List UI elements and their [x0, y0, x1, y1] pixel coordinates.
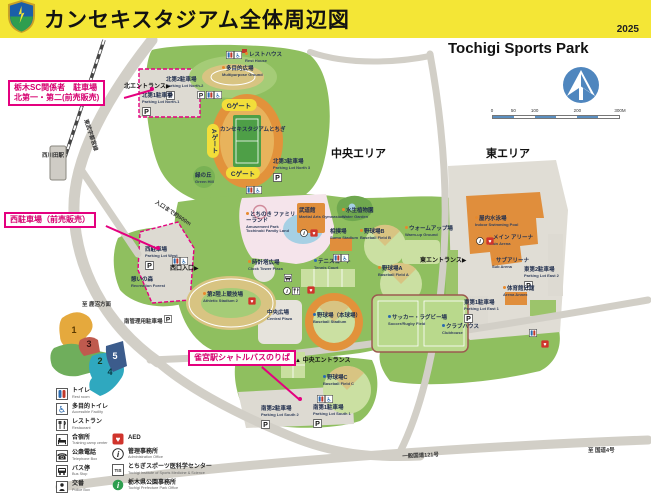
facility-label: 北第3駐車場Parking Lot North 3P	[273, 160, 310, 187]
svg-text:♥: ♥	[312, 231, 315, 237]
facility-name-en: Martial Arts Gymnasium	[299, 215, 345, 219]
restroom-icon	[317, 395, 325, 403]
road-label: 至 鹿沼方面	[82, 300, 111, 308]
scale-segment	[514, 116, 535, 118]
svg-text:♿: ♿	[215, 92, 220, 99]
svg-text:P: P	[147, 262, 152, 270]
facility-label: 第2陸上競技場Athletic Stadium 2	[203, 292, 243, 303]
facility-name-en: Clubhouse	[442, 331, 479, 335]
svg-text:♿: ♿	[342, 255, 347, 262]
svg-text:P: P	[166, 316, 170, 323]
legend-label-jp: 栃木県公園事務所	[128, 480, 178, 487]
tochigi-sc-logo	[7, 0, 36, 38]
restaurant-icon	[292, 287, 300, 295]
aed-icon: ♥	[541, 340, 549, 348]
bullet-icon	[342, 208, 345, 211]
facility-label: メイン アリーナMain Arena	[489, 235, 533, 246]
parking-icon: P	[142, 103, 151, 120]
svg-text:♥: ♥	[116, 435, 121, 444]
facility-label: 屋内水泳場Indoor Swimming Pool	[475, 216, 518, 227]
facility-name-en: Baseball Field B	[360, 236, 391, 240]
zone-number: 2	[97, 356, 102, 366]
svg-text:TIS: TIS	[114, 468, 121, 473]
facility-name-en: Baseball Stadium	[313, 320, 361, 324]
scale-tick: 0	[491, 108, 494, 113]
parking-icon: P	[145, 257, 154, 274]
facility-name-en: Sumo Stadium	[330, 236, 358, 240]
facility-label: 野球場BBaseball Field B	[360, 229, 391, 240]
facility-label: 北第1駐車場Parking Lot North-1P	[142, 94, 179, 121]
facility-label: 時計塔広場Clock Tower Plaza	[248, 260, 283, 271]
legend-item: ♥AED	[112, 431, 212, 447]
svg-text:♿: ♿	[235, 52, 240, 59]
restaurant-icon	[56, 419, 69, 431]
legend-item: トイレRest room	[56, 386, 108, 402]
zone-number: 5	[112, 351, 117, 361]
bullet-icon	[203, 292, 206, 295]
facility-name-en: Indoor Swimming Pool	[475, 223, 518, 227]
stadium-gate-label: Gゲート	[222, 99, 257, 111]
facility-name-en: Green Hill	[195, 180, 214, 184]
bullet-icon	[475, 216, 478, 219]
facility-label: 緑の丘Green Hill	[195, 174, 214, 184]
restroom-icon	[226, 51, 234, 59]
legend-item: レストランRestaurant	[56, 417, 108, 433]
legend-item: i栃木県公園事務所Tochigi Prefecture Park Office	[112, 478, 212, 494]
page-title: カンセキスタジアム全体周辺図	[44, 4, 350, 34]
facility-label: 南第2駐車場Parking Lot South 2P	[261, 407, 299, 434]
info-icon: i	[476, 237, 484, 245]
road-label: 入口まで約600m	[154, 198, 193, 227]
bullet-icon	[503, 286, 506, 289]
bullet-icon	[314, 259, 317, 262]
callout-leader-dot	[150, 87, 154, 91]
restroom-icon	[333, 254, 341, 262]
parking-icon: P	[164, 319, 172, 325]
facility-name-en: Warm-up Ground	[405, 233, 453, 237]
scale-segment	[577, 116, 598, 118]
restroom-icon	[56, 388, 69, 400]
facility-label: 多目的広場Multipurpose Ground	[222, 66, 263, 77]
facility-label: 野球場（本球場）Baseball Stadium	[313, 313, 361, 324]
svg-text:♿: ♿	[255, 187, 260, 194]
road-label: 東武宇都宮線	[82, 118, 100, 152]
facility-label: 野球場ABaseball Field A	[378, 266, 409, 277]
facility-name-en: Central Plaza	[267, 317, 292, 321]
bullet-icon	[388, 315, 391, 318]
scale-segment	[493, 116, 514, 118]
facility-name-en: Arena Annex	[503, 293, 535, 297]
legend-label-jp: バス停	[72, 466, 90, 473]
info-icon: i	[283, 287, 291, 295]
facility-name-en: Athletic Stadium 2	[203, 299, 243, 303]
facility-label: 体育館分館Arena Annex	[503, 286, 535, 297]
legend-label-jp: 多目的トイレ	[72, 404, 108, 411]
legend-label-en: Tochigi Institute of Sports Medicine & S…	[128, 471, 212, 475]
facility-label: 東第1駐車場Parking Lot East 1P	[464, 301, 499, 328]
bullet-icon	[405, 226, 408, 229]
svg-text:♥: ♥	[543, 342, 546, 348]
entrance-label: 北エントランス▶	[124, 81, 171, 90]
aed-icon: ♥	[307, 286, 315, 294]
facility-label: サッカー・ラグビー場Soccer/Rugby Field	[388, 315, 447, 326]
facility-name-en: Amusement Park Tochinoki Family Land	[246, 225, 298, 233]
legend-label-jp: 管理事務所	[128, 449, 163, 456]
facility-name-en: Baseball Field C	[323, 382, 354, 386]
svg-text:♥: ♥	[250, 299, 253, 305]
callout-leader-line	[106, 225, 159, 249]
legend-item: ☎公衆電話Telephone Box	[56, 448, 108, 464]
svg-text:P: P	[466, 315, 471, 323]
road-label: 至 国道4号	[588, 446, 615, 454]
facility-label: 水生植物園Water Garden	[342, 208, 374, 219]
legend-left-column: トイレRest room♿多目的トイレAccessible Facilityレス…	[56, 386, 108, 495]
legend-item: ♿多目的トイレAccessible Facility	[56, 402, 108, 418]
facility-label: 武道館Martial Arts Gymnasium	[299, 209, 345, 219]
accessible-icon: ♿	[341, 254, 349, 262]
legend-label-en: Police Box	[72, 488, 90, 492]
legend-label-en: Tochigi Prefecture Park Office	[128, 486, 178, 490]
facility-name-en: Soccer/Rugby Field	[388, 322, 447, 326]
facility-label: 中央広場Central Plaza	[267, 311, 292, 321]
stadium-gate-label: Cゲート	[226, 167, 260, 179]
legend-label-en: Administration Office	[128, 455, 163, 459]
year-label: 2025	[617, 24, 639, 35]
callout-leader-line	[262, 366, 301, 400]
svg-text:♿: ♿	[58, 405, 66, 415]
accessible-icon: ♿	[56, 403, 69, 415]
accessible-icon: ♿	[325, 395, 333, 403]
restroom-icon	[529, 329, 537, 337]
legend-label-jp: 合宿所	[72, 435, 108, 442]
header-bar: カンセキスタジアム全体周辺図 2025	[0, 0, 651, 38]
scale-tick: 300M	[614, 108, 625, 113]
svg-text:♿: ♿	[181, 258, 186, 265]
park-office-icon: i	[112, 479, 125, 491]
svg-text:P: P	[144, 108, 149, 116]
facility-name-en: Main Arena	[489, 242, 533, 246]
restroom-icon	[172, 257, 180, 265]
scale-tick: 100	[531, 108, 539, 113]
facility-name-en: Baseball Field A	[378, 273, 409, 277]
legend-item: バス停Bus Stop	[56, 464, 108, 480]
legend-label-en: Training camp center	[72, 441, 108, 445]
road-label: 南管理用駐車場 P	[124, 315, 172, 325]
callout-box: 西駐車場（前売販売）	[4, 212, 96, 228]
legend-label-jp: レストラン	[72, 419, 102, 426]
zone-number: 1	[71, 325, 76, 335]
parking-icon: P	[261, 416, 270, 433]
legend-label-en: Restaurant	[72, 426, 102, 430]
aed-icon: ♥	[248, 297, 256, 305]
area-label: 中央エリア	[331, 145, 386, 161]
bus-stop-icon	[56, 465, 69, 477]
entrance-label: 東エントランス▶	[420, 255, 467, 264]
aed-icon: ♥	[486, 237, 494, 245]
facility-name-en: Clock Tower Plaza	[248, 267, 283, 271]
facility-label: カンセキスタジアムとちぎ	[220, 128, 285, 134]
bullet-icon	[442, 324, 445, 327]
accessible-icon: ♿	[180, 257, 188, 265]
scale-segment	[556, 116, 577, 118]
road-label: 西川田駅	[42, 151, 64, 159]
police-icon	[56, 481, 69, 493]
bullet-icon	[360, 229, 363, 232]
parking-icon: P	[273, 169, 282, 186]
svg-text:♿: ♿	[326, 396, 331, 403]
facility-label: 南第1駐車場Parking Lot South 1P	[313, 406, 351, 433]
entrance-label: ▲ 中央エントランス	[295, 355, 351, 364]
svg-text:☎: ☎	[57, 451, 68, 461]
screen: カンセキスタジアム全体周辺図 2025 Tochigi Sports Park …	[0, 0, 651, 500]
legend-item: TISとちぎスポーツ医科学センターTochigi Institute of Sp…	[112, 462, 212, 478]
svg-text:P: P	[275, 174, 280, 182]
bullet-icon	[248, 260, 251, 263]
parking-icon: P	[313, 415, 322, 432]
bullet-icon	[245, 52, 248, 55]
facility-label: 野球場CBaseball Field C	[323, 375, 354, 386]
bullet-icon	[222, 66, 225, 69]
info-icon: i	[300, 229, 308, 237]
lodging-icon	[56, 434, 69, 446]
parking-icon: P	[197, 91, 205, 99]
scale-segment	[598, 116, 619, 118]
facility-label: レストハウスRest House	[245, 52, 282, 63]
aed-icon: ♥	[310, 229, 318, 237]
legend-item: 交番Police Box	[56, 479, 108, 495]
callout-leader-dot	[156, 246, 160, 250]
legend-item: i管理事務所Administration Office	[112, 447, 212, 463]
bullet-icon	[378, 266, 381, 269]
svg-text:P: P	[263, 421, 268, 429]
tis-icon: TIS	[112, 464, 125, 476]
facility-label: 相撲場Sumo Stadium	[330, 230, 358, 240]
legend-label-en: Bus Stop	[72, 472, 90, 476]
svg-text:P: P	[199, 92, 203, 99]
bullet-icon	[313, 313, 316, 316]
legend-right-column: ♥AEDi管理事務所Administration OfficeTISとちぎスポー…	[112, 431, 212, 493]
bus-stop-icon	[284, 274, 292, 282]
facility-label: ウォームアップ場Warm-up Ground	[405, 226, 453, 237]
parking-icon: P	[464, 310, 473, 327]
svg-text:P: P	[315, 420, 320, 428]
facility-name-en: Water Garden	[342, 215, 374, 219]
accessible-icon: ♿	[254, 186, 262, 194]
svg-text:♥: ♥	[488, 239, 491, 245]
zone-number: 4	[107, 367, 112, 377]
scale-segment	[535, 116, 556, 118]
callout-box: 栃木SC関係者 駐車場北第一・第二(前売販売)	[8, 80, 105, 106]
facility-name-en: Tennis Court	[314, 266, 351, 270]
svg-text:♥: ♥	[309, 288, 312, 294]
bullet-icon	[323, 375, 326, 378]
accessible-icon: ♿	[214, 91, 222, 99]
legend-label-jp: トイレ	[72, 388, 90, 395]
callout-leader-dot	[298, 397, 302, 401]
legend-label-en: Telephone Box	[72, 457, 97, 461]
map-title-en: Tochigi Sports Park	[448, 40, 589, 57]
restroom-icon	[246, 186, 254, 194]
bullet-icon	[246, 212, 249, 215]
legend-label-jp: 交番	[72, 481, 90, 488]
facility-label: とちのき ファミリーランドAmusement Park Tochinoki Fa…	[246, 212, 298, 233]
stadium-gate-label: Aゲート	[207, 124, 219, 158]
facility-name-en: Recreation Forest	[131, 284, 165, 288]
zone-number: 3	[86, 339, 91, 349]
accessible-icon: ♿	[234, 51, 242, 59]
north-arrow-icon	[562, 66, 600, 109]
legend-label-jp: 公衆電話	[72, 450, 97, 457]
bullet-icon	[492, 258, 495, 261]
facility-name-en: Multipurpose Ground	[222, 73, 263, 77]
callout-box: 雀宮駅シャトルバスのりば	[188, 350, 296, 366]
legend-item: 合宿所Training camp center	[56, 433, 108, 449]
scale-tick: 200	[574, 108, 582, 113]
phone-icon: ☎	[56, 450, 69, 462]
aed-icon: ♥	[112, 433, 125, 445]
legend-label-en: Rest room	[72, 395, 90, 399]
legend-label-en: Accessible Facility	[72, 410, 108, 414]
road-label: 一般国道121号	[402, 450, 439, 460]
area-label: 東エリア	[486, 145, 530, 161]
legend-label-jp: AED	[128, 435, 141, 442]
facility-name-jp: カンセキスタジアムとちぎ	[220, 128, 285, 134]
facility-name-en: Rest House	[245, 59, 282, 63]
legend-label-jp: とちぎスポーツ医科学センター	[128, 464, 212, 471]
scale-bar: 050100200300M	[492, 108, 620, 119]
info-icon: i	[112, 448, 125, 460]
facility-name-jp: とちのき ファミリーランド	[246, 212, 298, 225]
restroom-icon	[206, 91, 214, 99]
facility-label: 憩いの森Recreation Forest	[131, 278, 165, 288]
scale-tick: 50	[511, 108, 516, 113]
